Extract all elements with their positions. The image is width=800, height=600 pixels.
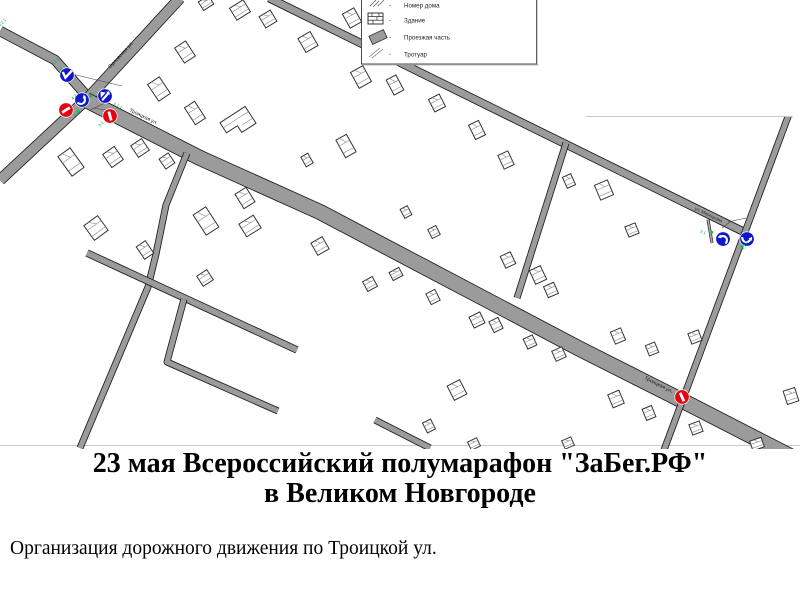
svg-text:Здание: Здание <box>404 18 426 25</box>
svg-text:-: - <box>389 18 391 24</box>
svg-text:Проезжая часть: Проезжая часть <box>404 35 450 42</box>
svg-text:Номер дома: Номер дома <box>404 3 440 10</box>
svg-text:Тротуар: Тротуар <box>404 52 428 59</box>
svg-text:-: - <box>389 35 391 41</box>
svg-text:-: - <box>389 52 391 58</box>
svg-text:-: - <box>389 3 391 9</box>
